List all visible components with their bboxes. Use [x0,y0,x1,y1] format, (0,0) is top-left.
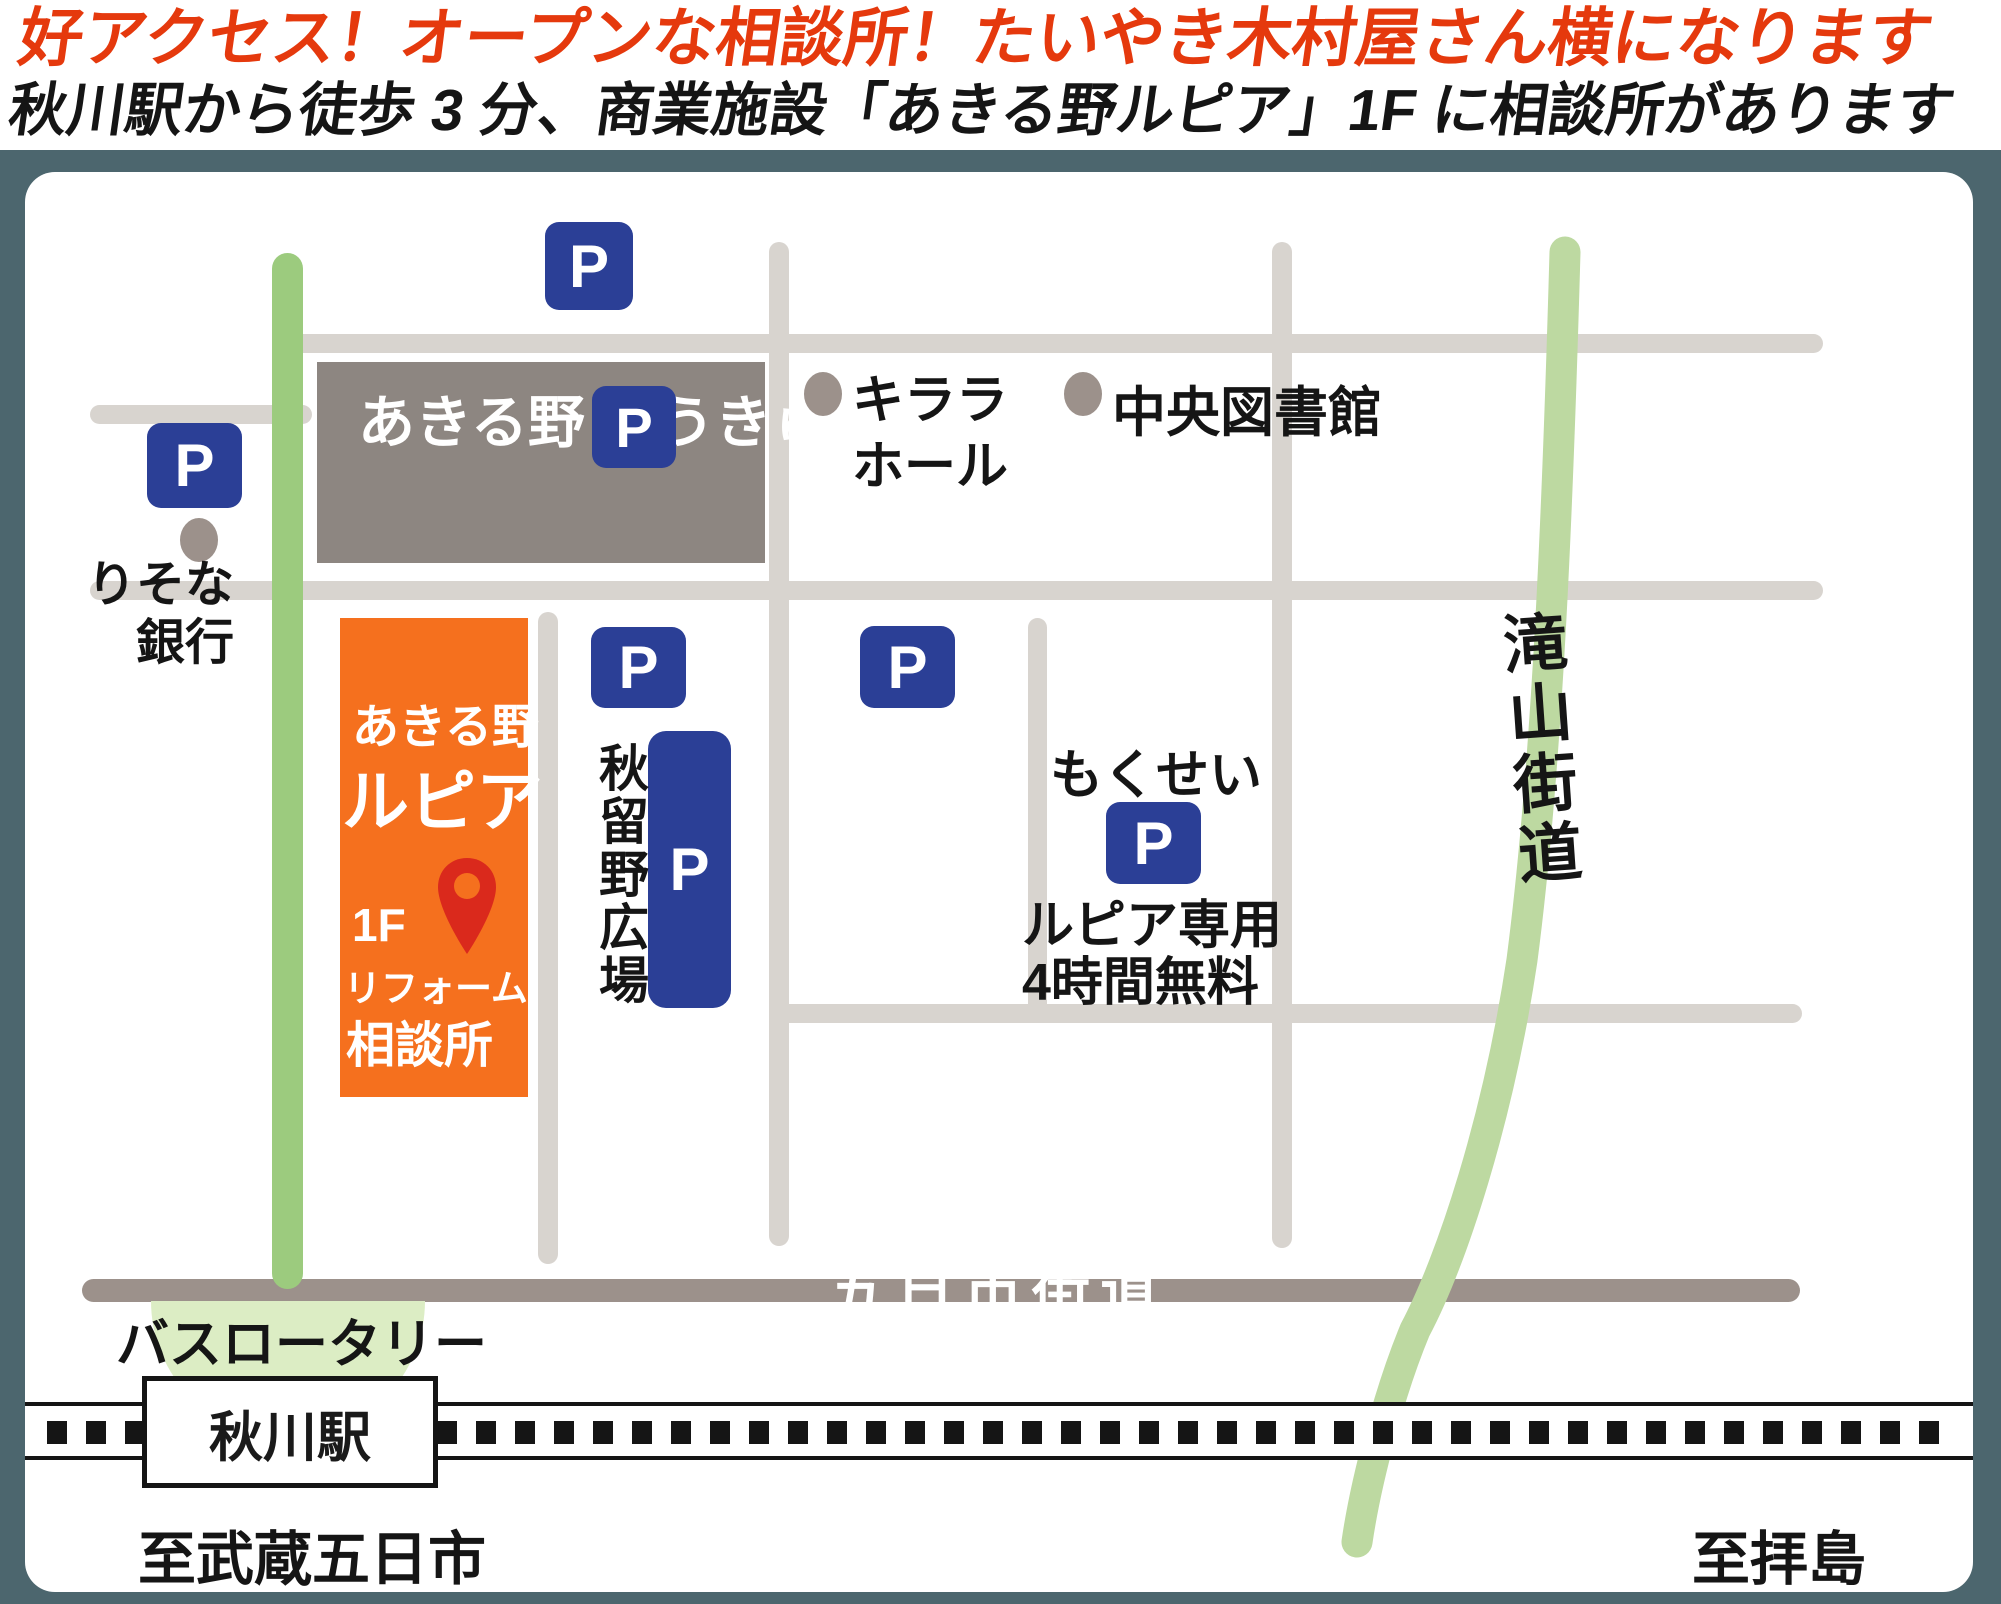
parking-icon-tokyu: P [592,386,676,468]
akigawa-station-label: 秋川駅 [209,1393,371,1472]
parking-icon-mokusei: P [1106,802,1201,884]
parking-icon-middle: P [860,626,955,708]
central-library-label: 中央図書館 [1112,368,1382,447]
parking-icon-hiroba-tall: P [648,731,731,1008]
location-pin-icon [436,856,498,958]
kirara-hall-label: キララ ホール [852,368,1008,500]
akiruno-hiroba-label: 秋留野広場 [584,742,656,1007]
lupia-label-line3: リフォーム [344,958,528,1012]
lupia-label-floor: 1F [352,898,406,952]
bus-rotary-label: バスロータリー [116,1302,487,1378]
to-haijima-label: 至拝島 [1692,1512,1866,1596]
headline-line1: 好アクセス！オープンな相談所！たいやき木村屋さん横になります [14,0,1970,76]
poi-dot-kirara-icon [804,372,842,416]
mokusei-label: もくせい [1050,733,1262,809]
lupia-parking-note: ルピア専用 4時間無料 [1022,898,1282,1012]
takiyama-kaido-label: 滝山街道 [1482,607,1593,893]
parking-icon-top: P [545,222,633,310]
poi-dot-library-icon [1064,372,1102,416]
headline-line2: 秋川駅から徒歩 3 分、商業施設「あきる野ルピア」1F に相談所があります [4,76,1959,146]
risona-bank-label: りそな 銀行 [58,556,234,672]
akigawa-station-box: 秋川駅 [142,1376,438,1488]
headline: 好アクセス！オープンな相談所！たいやき木村屋さん横になります 秋川駅から徒歩 3… [4,0,1970,146]
to-musashi-itsukaichi-label: 至武蔵五日市 [138,1512,486,1596]
lupia-label-line2: ルピア [342,748,543,845]
lupia-label-line4: 相談所 [346,1006,493,1077]
tokyu-label-line1: あきる野 [358,391,585,455]
parking-icon-hiroba-small: P [591,627,686,708]
parking-icon-risona: P [147,423,242,508]
lupia-label-line1: あきる野 [352,688,539,757]
